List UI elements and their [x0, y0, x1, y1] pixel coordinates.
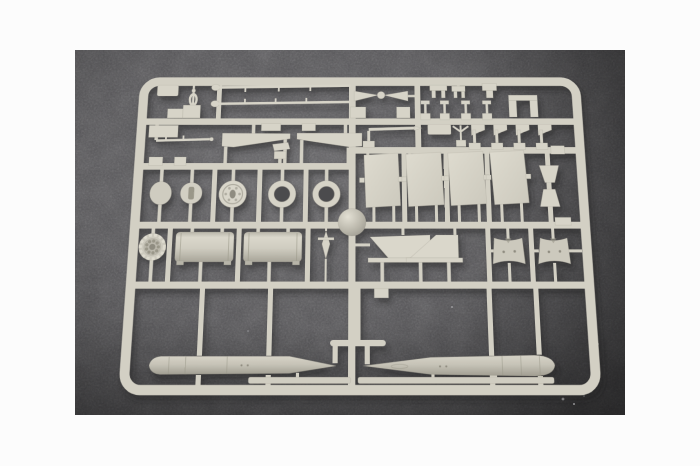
rail-tab	[555, 217, 571, 225]
flat-panel-part-4	[490, 150, 530, 204]
rail-tab	[261, 123, 281, 130]
dome-ball-part	[338, 209, 366, 236]
slotted-disc-part	[180, 183, 203, 204]
half-cylinder-part-2	[243, 232, 302, 265]
flag-bracket-parts	[468, 124, 553, 149]
corner-plate-part	[157, 85, 179, 96]
flat-block-part	[149, 125, 179, 137]
ring-part-2	[312, 181, 340, 208]
torpedo-hull-right-part	[363, 355, 555, 376]
rail-tab	[149, 157, 163, 165]
saddle-cowl-part-2	[537, 238, 571, 264]
step-block-part	[167, 105, 200, 118]
u-bracket-part	[508, 95, 538, 117]
hanging-clip-part-3	[482, 83, 497, 97]
flat-plate-part	[428, 124, 451, 134]
trapezoid-block-part-2	[539, 189, 560, 206]
hanging-clip-part-1	[430, 85, 448, 98]
sprue	[123, 81, 596, 390]
rail-tab	[302, 123, 316, 130]
hub-disc-part	[218, 181, 247, 208]
plain-disc-part	[149, 182, 172, 205]
flat-panel-part-3	[448, 151, 487, 205]
ring-part-1	[268, 181, 296, 208]
half-cylinder-part-1	[174, 232, 234, 265]
tiny-anchor-part	[453, 125, 469, 146]
rail-tab	[551, 146, 565, 154]
saddle-cowl-part-1	[492, 238, 525, 264]
long-rod-part-2	[211, 98, 351, 107]
hanging-clip-part-2	[452, 86, 466, 98]
yardarm-bowtie-part	[354, 91, 408, 101]
flat-panel-part-1	[364, 153, 401, 207]
fin-base-strip	[406, 258, 463, 263]
hull-wedge-right-part	[297, 133, 362, 147]
sprue-layer	[0, 18, 700, 466]
gear-disc-part	[138, 234, 167, 261]
rail-tab	[397, 107, 411, 118]
t-pin-parts	[420, 101, 492, 120]
thin-strip-part-2	[358, 377, 554, 383]
rail-tab	[374, 289, 388, 298]
rail-tab	[174, 157, 186, 165]
rail-v2	[417, 85, 418, 150]
photo-stage	[0, 0, 700, 466]
trapezoid-block-part-1	[539, 165, 560, 182]
thin-strip-part-1	[248, 377, 350, 383]
rail-tab	[350, 107, 365, 118]
angle-bracket-part	[272, 142, 290, 158]
boom-rod-part	[363, 126, 422, 147]
finned-dart-part	[318, 231, 334, 259]
torpedo-hull-left-part	[148, 356, 336, 374]
flat-panel-part-2	[406, 152, 444, 206]
